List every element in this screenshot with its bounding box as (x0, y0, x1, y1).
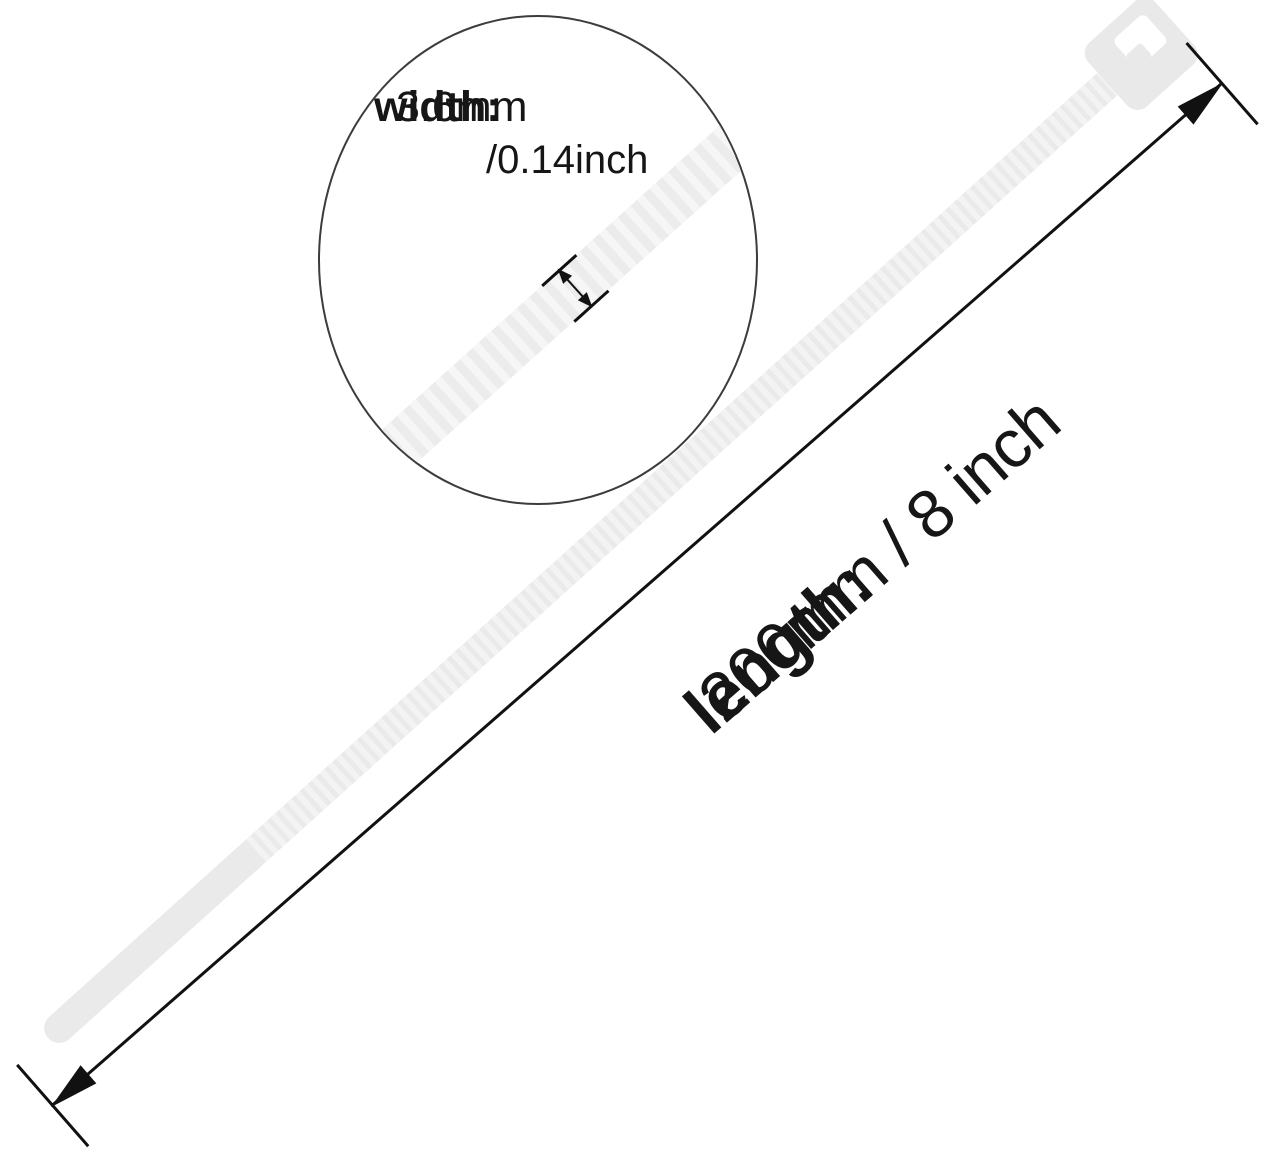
dimension-arrowhead-end-icon (1177, 73, 1230, 124)
magnifier-circle: width:3.6mm /0.14inch (318, 15, 758, 505)
dimension-arrowhead-start-icon (43, 1064, 96, 1115)
product-image: length:200mm / 8 inch width:3.6mm /0.14i… (0, 0, 1270, 1165)
width-value-mm: 3.6mm (396, 83, 527, 132)
width-value-inch: /0.14inch (486, 137, 648, 183)
length-value: 200mm / 8 inch (684, 381, 1075, 736)
